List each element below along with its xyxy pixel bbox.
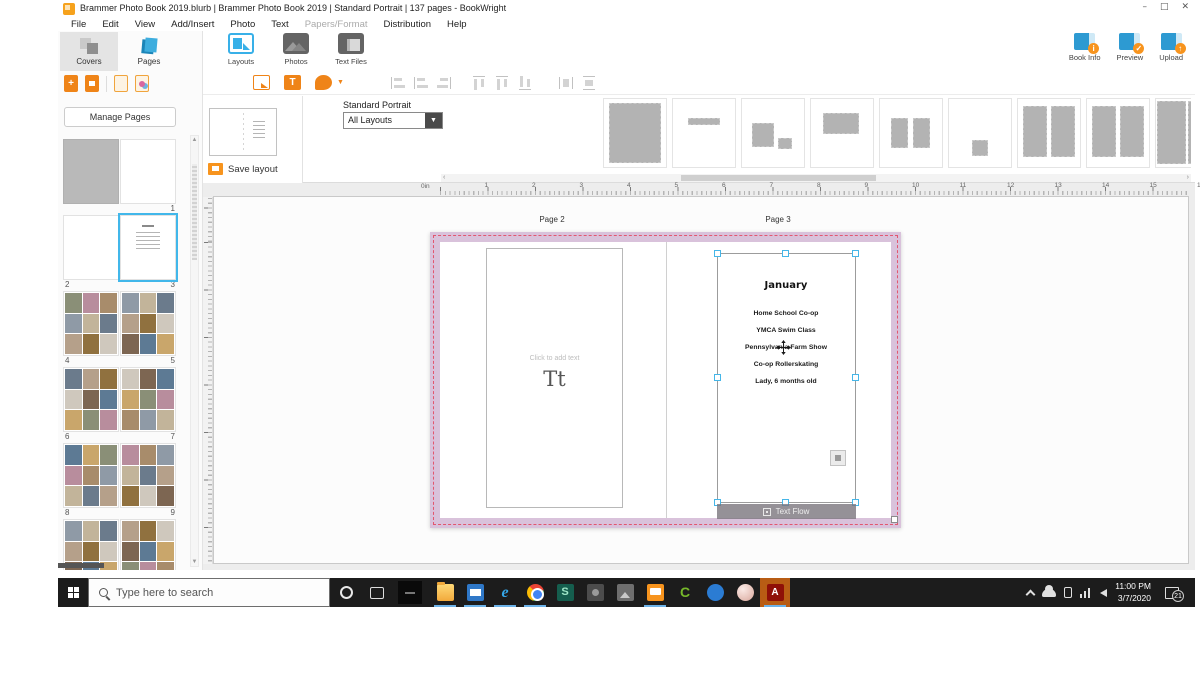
text-placeholder-glyph[interactable]: Tt <box>487 367 622 391</box>
maximize-button[interactable]: □ <box>1160 2 1169 12</box>
layout-filter-value: All Layouts <box>344 113 425 128</box>
layout-shape <box>972 140 988 156</box>
add-photo-box-icon[interactable] <box>253 75 270 90</box>
windows-logo-icon <box>68 587 79 598</box>
photo-cell <box>140 445 157 465</box>
resize-handle-middle-right[interactable] <box>852 374 859 381</box>
layout-shape <box>688 118 720 125</box>
spread-page[interactable] <box>63 139 119 204</box>
photo-cell <box>140 521 157 541</box>
title-bar: Brammer Photo Book 2019.blurb | Brammer … <box>58 0 1195 18</box>
chevron-up-icon[interactable] <box>1026 589 1036 599</box>
ruler-number: 6 <box>722 182 726 189</box>
tab-covers-label: Covers <box>76 57 101 66</box>
scroll-left-icon[interactable]: ‹ <box>443 174 445 182</box>
photo-cell <box>65 466 82 486</box>
photo-cell <box>157 542 174 562</box>
spread-corner-handle[interactable] <box>891 516 898 523</box>
move-cursor-icon <box>776 340 791 355</box>
tab-pages-label: Pages <box>138 57 161 66</box>
manage-pages-button[interactable]: Manage Pages <box>64 107 176 127</box>
pinned-app-icon[interactable] <box>398 581 422 604</box>
photo-cell <box>140 486 157 506</box>
align-center-icon[interactable] <box>414 77 428 89</box>
photo-cell <box>122 369 139 389</box>
layout-thumbnail-photo-stack[interactable] <box>741 98 805 168</box>
network-icon[interactable] <box>1080 588 1092 598</box>
photo-cell <box>83 369 100 389</box>
taskbar-app-camera[interactable] <box>580 578 610 607</box>
photo-cell <box>122 445 139 465</box>
mail-icon <box>467 584 484 601</box>
ruler-number: 10 <box>912 182 919 189</box>
layouts-panel: Standard Portrait All Layouts ▼ ‹ › <box>303 96 1195 183</box>
page-spread: Click to add text Tt <box>430 232 901 528</box>
book-info-button[interactable]: Book Info <box>1069 33 1101 62</box>
add-text-box-icon[interactable] <box>284 75 301 90</box>
layout-thumbnail-title-text[interactable] <box>672 98 736 168</box>
pages-sidebar: Covers Pages Manage Pages 123456789 ▲ ▼ <box>58 31 203 570</box>
layout-shape <box>609 103 661 163</box>
menu-bar: FileEditViewAdd/InsertPhotoTextPapers/Fo… <box>58 18 1195 31</box>
photo-cell <box>83 314 100 334</box>
preview-label: Preview <box>1117 53 1144 62</box>
menu-distribution[interactable]: Distribution <box>376 18 440 31</box>
photo-cell <box>122 542 139 562</box>
spread-page-numbers: 23 <box>63 280 177 291</box>
search-icon <box>99 588 108 597</box>
menu-text[interactable]: Text <box>263 18 296 31</box>
menu-add-insert[interactable]: Add/Insert <box>163 18 222 31</box>
photo-cell <box>157 410 174 430</box>
text-files-label: Text Files <box>335 57 367 66</box>
photo-cell <box>157 314 174 334</box>
photo-cell <box>122 293 139 313</box>
photo-cell <box>100 390 117 410</box>
photo-cell <box>140 390 157 410</box>
photo-mosaic <box>122 293 174 354</box>
photo-cell <box>100 486 117 506</box>
spread-page[interactable] <box>120 215 176 280</box>
photo-cell <box>83 521 100 541</box>
page-number: 6 <box>65 432 69 443</box>
photo-cell <box>157 293 174 313</box>
spread-page[interactable] <box>63 215 119 280</box>
page-number: 3 <box>171 280 175 291</box>
photo-cell <box>100 334 117 354</box>
taskbar-clock[interactable]: 11:00 PM 3/7/2020 <box>1115 581 1151 603</box>
photo-cell <box>122 486 139 506</box>
spread-page[interactable] <box>120 367 176 432</box>
delete-page-icon[interactable] <box>85 75 99 92</box>
system-tray: 11:00 PM 3/7/2020 21 <box>1027 578 1179 607</box>
book-info-label: Book Info <box>1069 53 1101 62</box>
photo-cell <box>65 369 82 389</box>
chrome-icon <box>527 584 544 601</box>
text-line: Lady, 6 months old <box>718 378 855 395</box>
divider <box>106 76 107 92</box>
task-view-icon[interactable] <box>370 587 384 599</box>
upload-badge-icon <box>1175 43 1186 54</box>
taskbar-app-file-explorer[interactable] <box>430 578 460 607</box>
layout-preview-thumbnail[interactable] <box>209 108 277 156</box>
cloud-icon[interactable] <box>1042 589 1056 597</box>
photo-cell <box>100 521 117 541</box>
canvas-area: 0in 12345678910111213141516 Page 2 Page … <box>203 183 1195 570</box>
preview-button[interactable]: Preview <box>1117 33 1144 62</box>
photo-cell <box>83 466 100 486</box>
spread-pages <box>63 139 177 204</box>
photo-cell <box>83 293 100 313</box>
photos-label: Photos <box>284 57 307 66</box>
layouts-icon <box>228 33 254 54</box>
taskbar-app-c-app[interactable] <box>670 578 700 607</box>
format-toolbar: ▼ <box>203 72 1195 95</box>
taskbar-app-sphere-app[interactable] <box>730 578 760 607</box>
ruler-number: 14 <box>1102 182 1109 189</box>
mini-text-preview <box>135 225 161 252</box>
text-line: Home School Co-op <box>718 310 855 327</box>
sidebar-spread-2[interactable]: 45 <box>63 291 177 367</box>
minimize-button[interactable]: – <box>1142 2 1147 12</box>
save-layout-label: Save layout <box>228 164 278 175</box>
photo-cell <box>140 466 157 486</box>
layout-thumbnail-full-bleed[interactable] <box>603 98 667 168</box>
covers-icon <box>80 38 98 54</box>
photo-cell <box>157 521 174 541</box>
photo-cell <box>157 445 174 465</box>
scroll-right-icon[interactable]: › <box>1187 174 1189 182</box>
menu-papers-format[interactable]: Papers/Format <box>297 18 376 31</box>
align-top-icon[interactable] <box>473 76 485 90</box>
layouts-scrollbar-thumb[interactable] <box>681 175 876 181</box>
spread-page[interactable] <box>120 443 176 508</box>
photo-cell <box>83 445 100 465</box>
layout-thumbnail-photo-small-bottom[interactable] <box>948 98 1012 168</box>
taskbar-app-chrome[interactable] <box>520 578 550 607</box>
layout-shape <box>891 118 908 148</box>
frame-badge-icon[interactable] <box>830 450 846 466</box>
cortana-icon[interactable] <box>340 586 353 599</box>
photo-cell <box>65 410 82 430</box>
scrollbar-thumb[interactable] <box>192 164 197 260</box>
layout-thumbnail-photo-landscape[interactable] <box>810 98 874 168</box>
main-toolbar: Layouts Photos Text Files – + Book Info <box>203 31 1195 72</box>
text-files-icon <box>338 33 364 54</box>
spread-pages <box>63 215 177 280</box>
messages-icon <box>647 584 664 601</box>
save-layout-icon <box>208 163 223 175</box>
tab-covers[interactable]: Covers <box>60 32 118 71</box>
spread-pages <box>63 291 177 356</box>
photo-cell <box>65 293 82 313</box>
ruler-number: 11 <box>960 182 967 189</box>
notification-count-badge: 21 <box>1172 590 1184 602</box>
text-flow-label: Text Flow <box>776 507 810 516</box>
ruler-number: 15 <box>1150 182 1157 189</box>
spread-page[interactable] <box>63 367 119 432</box>
duplicate-page-icon[interactable] <box>114 75 128 92</box>
layout-shape <box>1120 106 1144 158</box>
month-title: January <box>718 280 855 291</box>
sidebar-scrollbar[interactable]: ▲ ▼ <box>190 135 199 567</box>
photo-cell <box>65 445 82 465</box>
layout-category-label: Standard Portrait <box>343 100 411 110</box>
taskbar-app-mail[interactable] <box>460 578 490 607</box>
page-number: 5 <box>171 356 175 367</box>
save-layout-panel: Save layout <box>203 96 303 183</box>
preview-icon <box>1119 33 1140 50</box>
spread-page[interactable] <box>120 291 176 356</box>
photo-mosaic <box>122 445 174 506</box>
notification-center-icon[interactable]: 21 <box>1165 587 1179 599</box>
photos-mode-button[interactable]: Photos <box>270 33 322 71</box>
photo-cell <box>140 542 157 562</box>
photo-cell <box>122 521 139 541</box>
page-2-text-box[interactable]: Click to add text Tt <box>486 248 623 508</box>
photo-cell <box>65 334 82 354</box>
ruler-number: 7 <box>770 182 774 189</box>
volume-icon[interactable] <box>1100 589 1107 597</box>
add-page-icon[interactable] <box>64 75 78 92</box>
photo-cell <box>157 562 174 570</box>
upload-button[interactable]: Upload <box>1159 33 1183 62</box>
resize-handle-middle-left[interactable] <box>714 374 721 381</box>
page-number: 7 <box>171 432 175 443</box>
file-explorer-icon <box>437 584 454 601</box>
align-bottom-icon[interactable] <box>519 76 531 90</box>
layout-thumbnail-two-columns-small[interactable] <box>879 98 943 168</box>
layout-filter-dropdown[interactable]: All Layouts ▼ <box>343 112 443 129</box>
photo-cell <box>140 314 157 334</box>
photo-cell <box>140 334 157 354</box>
photo-cell <box>65 314 82 334</box>
search-input[interactable] <box>116 587 296 599</box>
photo-cell <box>122 410 139 430</box>
spread-pages <box>63 367 177 432</box>
photo-cell <box>100 314 117 334</box>
ruler-number: 12 <box>1007 182 1014 189</box>
layout-shape <box>1188 101 1191 164</box>
camera-icon <box>587 584 604 601</box>
phone-icon[interactable] <box>1064 587 1072 598</box>
page-number: 8 <box>65 508 69 519</box>
photo-mosaic <box>65 369 117 430</box>
photo-cell <box>157 390 174 410</box>
photo-mosaic <box>122 521 174 570</box>
layout-thumbnail-strip <box>603 98 1191 170</box>
bookwright-app-icon <box>63 3 75 15</box>
upload-icon <box>1161 33 1182 50</box>
left-page-label: Page 2 <box>502 215 602 224</box>
menu-photo[interactable]: Photo <box>222 18 263 31</box>
taskbar-app-sharex[interactable] <box>550 578 580 607</box>
ruler-number: 13 <box>1055 182 1062 189</box>
photo-cell <box>140 369 157 389</box>
photo-cell <box>100 542 117 562</box>
spread-thumbnail-list: 123456789 <box>63 139 177 570</box>
menu-file[interactable]: File <box>63 18 94 31</box>
photo-cell <box>157 369 174 389</box>
layout-shape <box>1157 101 1186 164</box>
sidebar-spread-0[interactable]: 1 <box>63 139 177 215</box>
page-3-text-frame[interactable]: January Home School Co-opYMCA Swim Class… <box>717 253 856 503</box>
tray-date: 3/7/2020 <box>1115 593 1151 604</box>
text-flow-bar[interactable]: Text Flow <box>717 504 856 519</box>
page-number: 9 <box>171 508 175 519</box>
layouts-label: Layouts <box>228 57 254 66</box>
spread-page-numbers: 67 <box>63 432 177 443</box>
sphere-app-icon <box>737 584 754 601</box>
layout-shape <box>1051 106 1075 158</box>
align-left-icon[interactable] <box>391 77 405 89</box>
blue-app-icon <box>707 584 724 601</box>
taskbar-app-internet-explorer[interactable] <box>490 578 520 607</box>
internet-explorer-icon <box>497 584 514 601</box>
chevron-down-icon: ▼ <box>425 113 442 128</box>
distribute-vertical-icon[interactable] <box>583 76 595 90</box>
photo-cell <box>157 466 174 486</box>
upload-label: Upload <box>1159 53 1183 62</box>
book-info-icon <box>1074 33 1095 50</box>
window-title: Brammer Photo Book 2019.blurb | Brammer … <box>80 3 506 13</box>
layout-shape <box>1023 106 1047 158</box>
distribute-horizontal-icon[interactable] <box>559 77 573 89</box>
layout-thumbnail-two-portraits[interactable] <box>1017 98 1081 168</box>
shapes-icon[interactable] <box>315 75 332 90</box>
ruler-number: 3 <box>580 182 584 189</box>
taskbar-app-photos[interactable] <box>610 578 640 607</box>
layouts-mode-button[interactable]: Layouts <box>215 33 267 71</box>
sidebar-horizontal-scrollbar[interactable] <box>58 563 104 568</box>
photo-cell <box>157 486 174 506</box>
video-frame: Brammer Photo Book 2019.blurb | Brammer … <box>0 0 1200 675</box>
pages-icon <box>140 38 158 54</box>
resize-handle-top-left[interactable] <box>714 250 721 257</box>
photo-cell <box>100 410 117 430</box>
menu-help[interactable]: Help <box>439 18 475 31</box>
sharex-icon <box>557 584 574 601</box>
scroll-up-icon[interactable]: ▲ <box>191 137 198 143</box>
menu-view[interactable]: View <box>127 18 163 31</box>
ruler-number: 5 <box>675 182 679 189</box>
sidebar-spread-1[interactable]: 23 <box>63 215 177 291</box>
resize-handle-top-middle[interactable] <box>782 250 789 257</box>
align-middle-icon[interactable] <box>496 76 508 90</box>
photos-icon <box>283 33 309 54</box>
photo-cell <box>140 410 157 430</box>
layout-shape <box>1092 106 1116 158</box>
windows-taskbar: 11:00 PM 3/7/2020 21 <box>58 578 1195 607</box>
photo-cell <box>65 521 82 541</box>
save-layout-button[interactable]: Save layout <box>208 163 278 175</box>
photo-cell <box>83 390 100 410</box>
page-number: 1 <box>171 204 175 215</box>
photo-cell <box>100 445 117 465</box>
photo-cell <box>122 390 139 410</box>
photo-cell <box>65 486 82 506</box>
ruler-number: 8 <box>817 182 821 189</box>
page-number: 4 <box>65 356 69 367</box>
spread-page[interactable] <box>120 139 176 204</box>
layout-shape <box>752 123 774 146</box>
photo-cell <box>157 334 174 354</box>
taskbar-search[interactable] <box>88 578 330 607</box>
photo-cell <box>100 369 117 389</box>
spread-page[interactable] <box>63 443 119 508</box>
import-page-icon[interactable] <box>135 75 149 92</box>
layout-thumbnail-two-portraits[interactable] <box>1086 98 1150 168</box>
tab-pages[interactable]: Pages <box>120 32 178 71</box>
align-right-icon[interactable] <box>437 77 451 89</box>
layout-shape <box>823 113 859 135</box>
photo-cell <box>122 314 139 334</box>
text-files-mode-button[interactable]: Text Files <box>325 33 377 71</box>
spread-page[interactable] <box>120 519 176 570</box>
photo-cell <box>83 334 100 354</box>
video-player-controls: 1:22.60 13:26.13 <box>0 607 1200 675</box>
acrobat-icon <box>767 584 784 601</box>
sidebar-spread-4[interactable]: 89 <box>63 443 177 519</box>
spread-page-numbers: 45 <box>63 356 177 367</box>
horizontal-ruler: 12345678910111213141516 <box>440 185 1190 195</box>
layout-shape <box>778 138 792 149</box>
scroll-down-icon[interactable]: ▼ <box>191 559 198 565</box>
close-button[interactable]: ✕ <box>1181 2 1189 12</box>
spread-pages <box>63 443 177 508</box>
text-placeholder[interactable]: Click to add text <box>487 355 622 362</box>
taskbar-app-blue-app[interactable] <box>700 578 730 607</box>
photo-mosaic <box>65 445 117 506</box>
page-number: 2 <box>65 280 69 291</box>
photo-cell <box>100 466 117 486</box>
recorded-screen: Brammer Photo Book 2019.blurb | Brammer … <box>58 0 1195 607</box>
photo-cell <box>83 542 100 562</box>
ruler-number: 2 <box>532 182 536 189</box>
layout-shape <box>913 118 930 148</box>
ruler-origin-label: 0in <box>421 183 430 190</box>
photo-mosaic <box>122 369 174 430</box>
page-3[interactable]: January Home School Co-opYMCA Swim Class… <box>666 242 892 518</box>
right-page-label: Page 3 <box>728 215 828 224</box>
page-2[interactable]: Click to add text Tt <box>440 242 666 518</box>
start-button[interactable] <box>58 578 88 607</box>
photos-icon <box>617 584 634 601</box>
ruler-number: 4 <box>627 182 631 189</box>
layouts-scrollbar[interactable]: ‹ › <box>441 174 1191 182</box>
menu-edit[interactable]: Edit <box>94 18 126 31</box>
spread-page[interactable] <box>63 291 119 356</box>
text-flow-icon <box>763 508 771 516</box>
photo-mosaic <box>65 293 117 354</box>
resize-handle-top-right[interactable] <box>852 250 859 257</box>
taskbar-app-acrobat[interactable] <box>760 578 790 607</box>
sidebar-spread-3[interactable]: 67 <box>63 367 177 443</box>
spread-page-numbers: 1 <box>63 204 177 215</box>
photo-cell <box>83 410 100 430</box>
taskbar-app-messages[interactable] <box>640 578 670 607</box>
c-app-icon <box>677 584 694 601</box>
photo-cell <box>122 466 139 486</box>
photo-cell <box>100 293 117 313</box>
photo-cell <box>122 334 139 354</box>
ruler-number: 1 <box>485 182 489 189</box>
photo-cell <box>83 486 100 506</box>
chevron-down-icon[interactable]: ▼ <box>337 79 344 86</box>
layout-thumbnail-two-portraits-bleed[interactable] <box>1155 98 1191 168</box>
photo-cell <box>65 542 82 562</box>
photo-cell <box>122 562 139 570</box>
